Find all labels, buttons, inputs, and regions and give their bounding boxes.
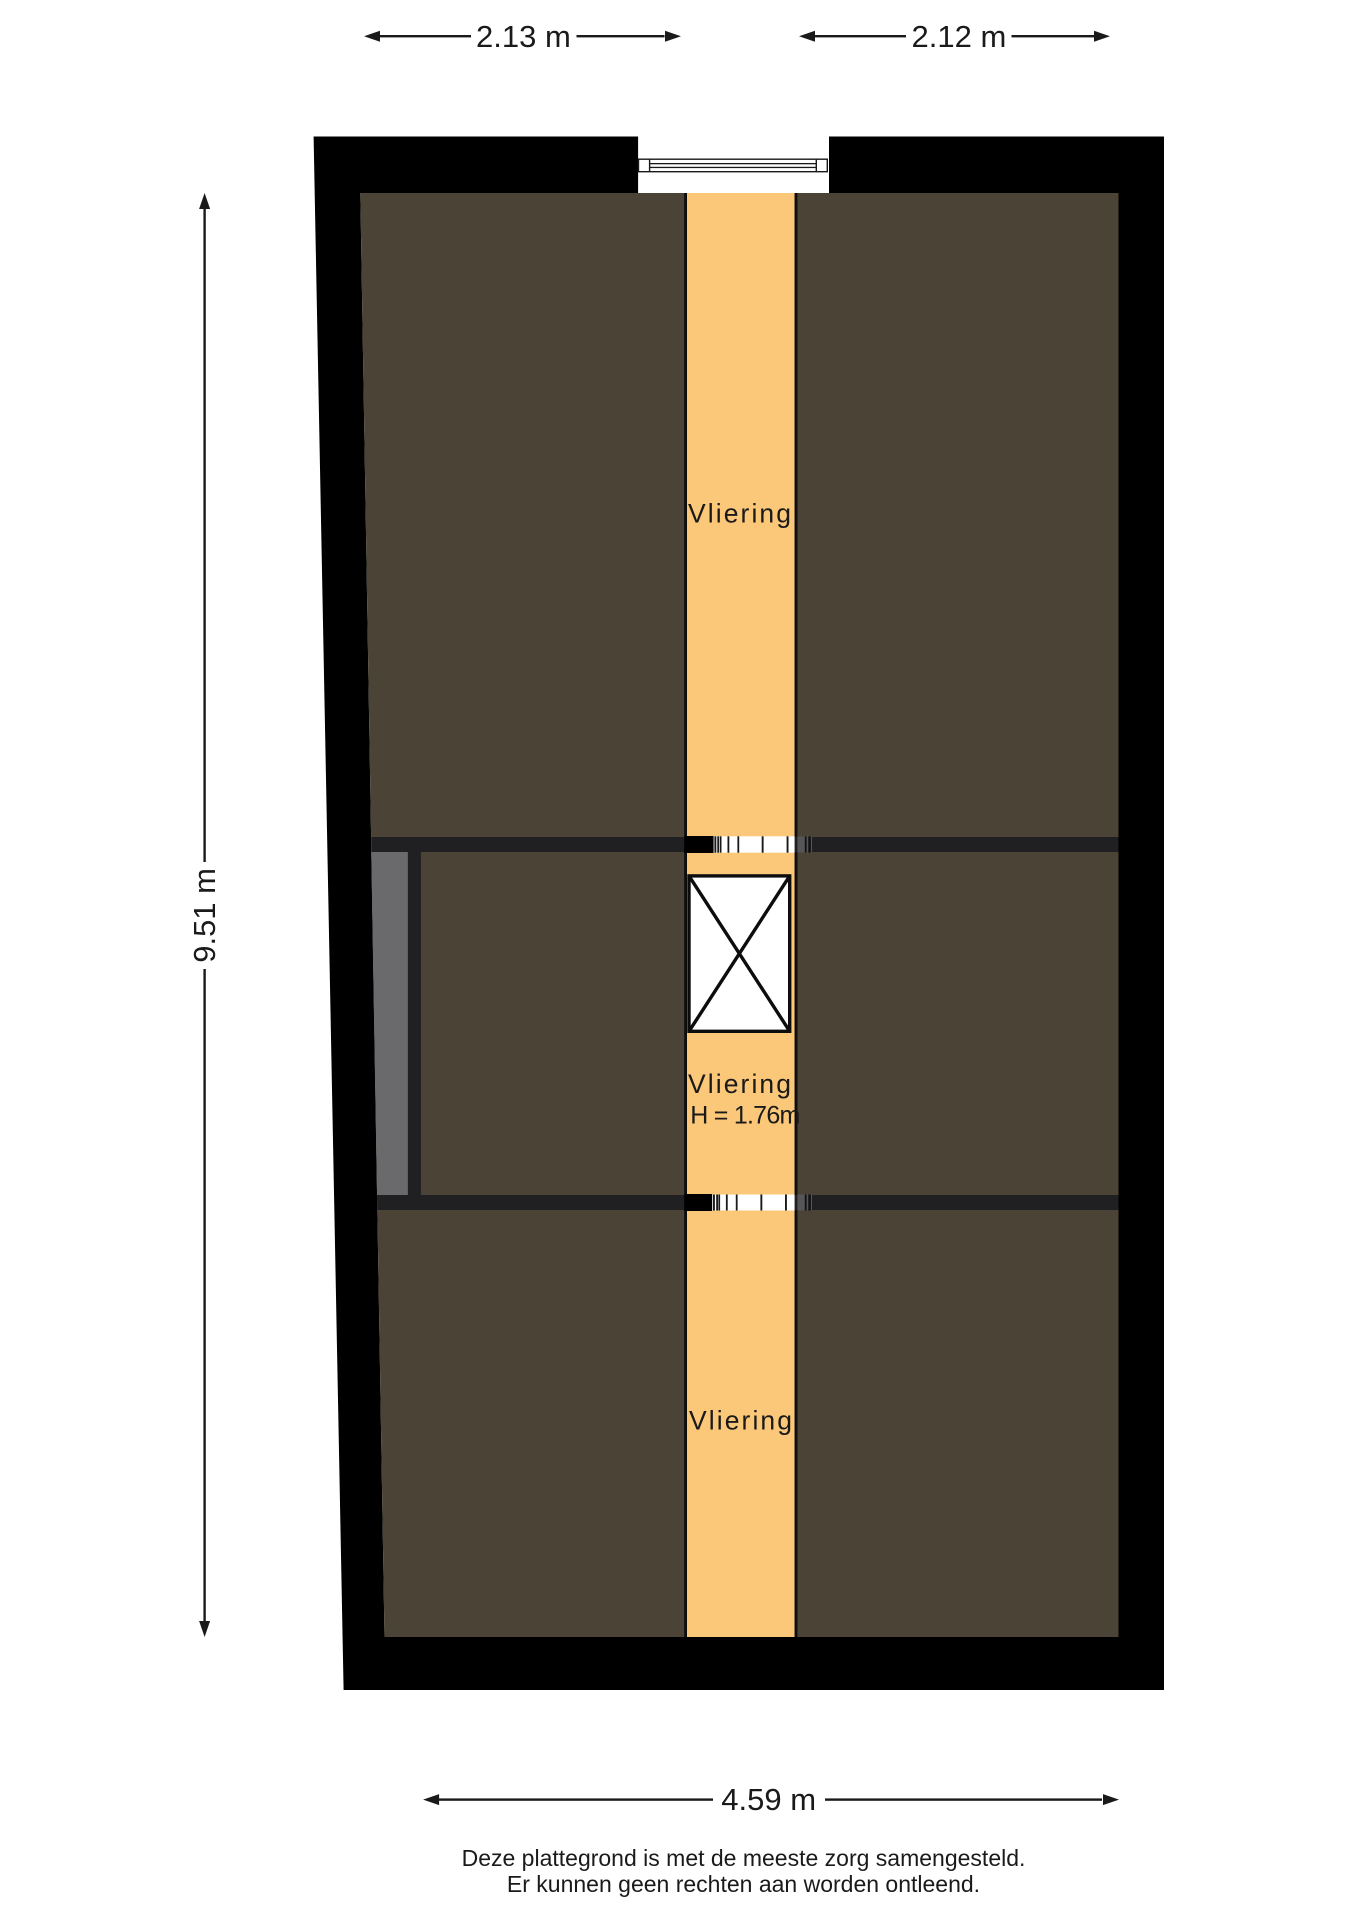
svg-text:2.12 m: 2.12 m xyxy=(912,19,1007,54)
svg-text:2.13 m: 2.13 m xyxy=(476,19,571,54)
svg-text:4.59 m: 4.59 m xyxy=(721,1782,816,1817)
svg-text:9.51 m: 9.51 m xyxy=(187,868,222,963)
svg-text:H = 1.76m: H = 1.76m xyxy=(690,1102,800,1130)
svg-text:Er kunnen geen rechten aan wor: Er kunnen geen rechten aan worden ontlee… xyxy=(507,1871,980,1897)
svg-text:Deze plattegrond is met de mee: Deze plattegrond is met de meeste zorg s… xyxy=(462,1845,1026,1871)
